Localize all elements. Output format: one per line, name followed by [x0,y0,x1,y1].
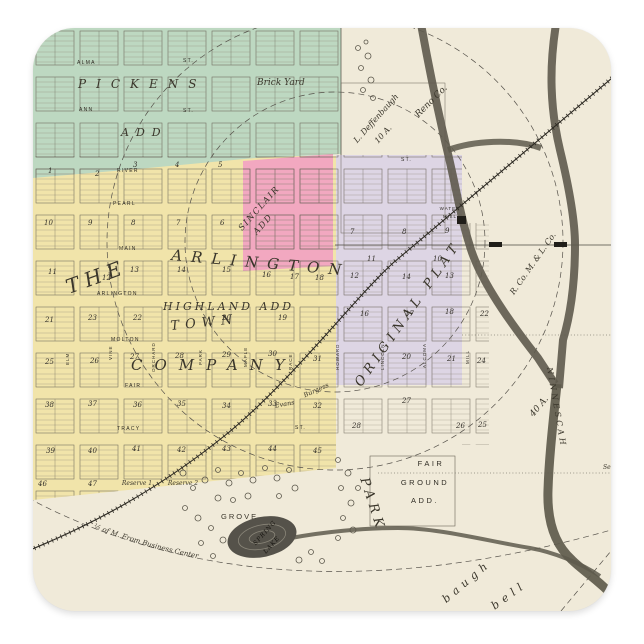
block-number: 7 [176,219,181,227]
street-label-tracy: TRACY [117,426,140,432]
street-label-arlington: ARLINGTON [97,291,138,297]
label-fair: FAIR [418,459,445,468]
street-label-elm: ELM [65,353,70,365]
block-number: 19 [278,314,287,322]
street-label-molton: MOLTON [111,337,140,343]
block-number: 3 [133,161,138,169]
product-image-canvas: ALMA ST. ANN ST. RIVER PEARL MAIN ARLING… [0,0,644,644]
label-ground: GROUND [401,478,449,487]
block-number: 14 [177,266,186,274]
map-sticker: ALMA ST. ANN ST. RIVER PEARL MAIN ARLING… [33,28,611,611]
block-number: 32 [313,402,322,410]
block-number: 22 [132,314,142,322]
block-number: 25 [477,421,487,429]
label-park: PARK [356,475,388,534]
block-number: 38 [45,401,54,409]
label-highland-add: HIGHLAND ADD [162,300,294,313]
label-forty-acres: 40 A. [527,394,551,419]
block-number: 37 [88,400,97,408]
block-number: 42 [176,446,186,454]
block-number: 16 [360,310,369,318]
street-label-st: ST. [295,425,306,431]
street-label-alcoma: ALCOMA [422,343,427,368]
label-pickens: PICKENS [77,77,206,91]
block-number: 28 [174,352,184,360]
block-number: 11 [48,268,57,276]
label-ten-acres: 10 A. [373,123,394,145]
street-label-mill: MILL [465,350,470,364]
label-grove: GROVE [221,512,258,521]
block-number: 17 [290,273,299,281]
block-number: 4 [174,161,179,169]
block-number: 41 [131,445,141,453]
block-number: 11 [367,255,376,263]
block-number: 12 [350,272,359,280]
block-number: 2 [94,170,100,178]
bridge-icon [554,242,567,247]
label-mill-co: R. Co. M. & L. Co. [508,231,558,297]
block-number: 5 [218,161,223,169]
block-number: 40 [87,447,97,455]
block-number: 45 [312,447,322,455]
street-label-howard: HOWARD [335,344,340,370]
block-number: 18 [445,308,454,316]
label-water-mill: MILL [443,214,457,219]
street-label-alma: ALMA [77,60,96,66]
plat-map: ALMA ST. ANN ST. RIVER PEARL MAIN ARLING… [33,28,611,611]
block-number: 1 [48,167,52,175]
block-number: 36 [133,401,142,409]
block-number: 8 [402,228,407,236]
bridge-icon [489,242,502,247]
block-number: 6 [220,219,225,227]
street-label-ann: ANN [79,107,93,113]
block-number: 39 [46,447,55,455]
street-label-st: ST. [183,108,194,114]
block-number: 34 [222,402,231,410]
label-brick-yard: Brick Yard [256,78,305,88]
label-half-mile: ½ of M. From Business Center [93,522,200,560]
block-number: 22 [479,310,489,318]
block-number: 13 [445,272,454,280]
block-number: 30 [268,350,277,358]
label-pickens-add: ADD [120,126,168,139]
label-reserve-2: Reserve 2 [167,480,198,487]
block-number: 21 [446,355,456,363]
block-number: 17 [405,310,414,318]
block-number: 25 [44,358,54,366]
street-label-st: ST. [183,58,194,64]
block-number: 24 [476,357,486,365]
block-number: 26 [89,357,99,365]
block-number: 10 [44,219,53,227]
label-add: ADD. [411,496,439,505]
block-number: 43 [221,445,231,453]
block-number: 9 [88,219,93,227]
block-number: 33 [268,400,277,408]
label-sec: Sec. [603,464,611,471]
block-number: 29 [221,351,231,359]
block-number: 28 [351,422,361,430]
block-number: 8 [131,219,136,227]
block-number: 47 [87,480,97,488]
block-number: 21 [44,316,54,324]
block-number: 10 [433,255,442,263]
block-number: 14 [402,273,411,281]
block-number: 44 [267,445,277,453]
block-number: 18 [315,274,324,282]
block-number: 26 [455,422,465,430]
label-bell: bell [489,578,529,611]
street-label-st: ST. [401,157,412,163]
water-mill-building [457,216,466,224]
label-reserve-1: Reserve 1 [121,480,152,487]
block-number: 46 [37,480,47,488]
block-number: 23 [87,314,97,322]
ninnescah-east-branch [551,28,575,388]
block-number: 9 [445,227,450,235]
block-number: 15 [222,266,231,274]
block-number: 16 [262,271,271,279]
label-water: WATER [440,206,461,211]
block-number: 27 [129,353,139,361]
street-label-fair: FAIR [125,383,141,389]
label-company: COMPANY [131,356,297,374]
block-number: 7 [350,228,355,236]
block-number: 35 [177,400,186,408]
block-number: 31 [313,355,322,363]
block-number: 13 [130,266,139,274]
street-label-pearl: PEARL [113,201,136,207]
block-number: 27 [401,397,411,405]
block-number: 20 [401,353,411,361]
street-label-vine: VINE [108,345,113,360]
river-connector [448,142,541,150]
block-number: 12 [102,274,111,282]
street-label-main: MAIN [119,246,137,252]
block-number: 20 [221,314,231,322]
south-plat-rows [336,385,462,442]
north-trees [356,40,376,101]
